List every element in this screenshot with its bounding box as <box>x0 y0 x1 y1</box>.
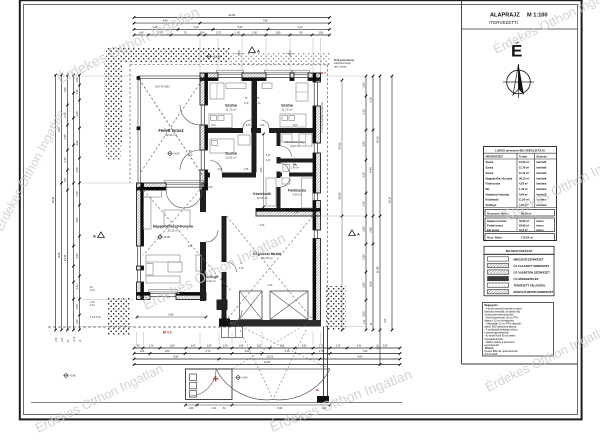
svg-text:1,90: 1,90 <box>63 87 67 93</box>
svg-text:11,40: 11,40 <box>376 266 380 273</box>
svg-text:Bf 0,0: Bf 0,0 <box>163 331 172 335</box>
svg-text:laminált: laminált <box>537 171 547 175</box>
svg-text:12,60: 12,60 <box>228 13 235 17</box>
svg-text:4,64 m²: 4,64 m² <box>290 144 300 148</box>
svg-text:épít. szerint: épít. szerint <box>334 65 347 68</box>
svg-text:9,45: 9,45 <box>57 252 61 258</box>
svg-text:2,10: 2,10 <box>75 191 79 197</box>
svg-text:8,00: 8,00 <box>358 356 363 359</box>
svg-text:+15,68: +15,68 <box>212 55 221 59</box>
svg-text:1,70: 1,70 <box>149 346 154 348</box>
svg-text:3,10: 3,10 <box>298 26 303 29</box>
svg-text:1,05: 1,05 <box>244 169 249 171</box>
svg-text:3,12 m²: 3,12 m² <box>519 228 528 232</box>
svg-text:LAKÁS tervezett HELYISÉGLISTÁJ: LAKÁS tervezett HELYISÉGLISTÁJA <box>495 148 546 153</box>
svg-text:8,50: 8,50 <box>174 356 179 359</box>
svg-text:2,00: 2,00 <box>257 346 262 348</box>
svg-text:4,40: 4,40 <box>268 285 273 287</box>
svg-text:12,52 m²: 12,52 m² <box>519 160 530 164</box>
svg-text:16,45: 16,45 <box>51 196 55 203</box>
svg-text:4,25 m²: 4,25 m² <box>292 193 302 197</box>
svg-text:11,12 m²: 11,12 m² <box>519 171 529 175</box>
svg-text:50/6-4S 0880: 50/6-4S 0880 <box>155 86 170 89</box>
svg-text:-0,02: -0,02 <box>173 152 180 156</box>
svg-text:2,40: 2,40 <box>75 167 79 173</box>
svg-text:5,30: 5,30 <box>238 26 243 29</box>
svg-text:1,00: 1,00 <box>235 31 240 34</box>
svg-text:16,10: 16,10 <box>388 196 392 203</box>
svg-text:1,40: 1,40 <box>208 187 213 189</box>
svg-text:2,80: 2,80 <box>362 226 366 232</box>
svg-text:2,10: 2,10 <box>90 290 95 292</box>
svg-text:Elő terasz: Elő terasz <box>487 228 500 232</box>
svg-text:1,21: 1,21 <box>212 407 217 410</box>
svg-text:2,40: 2,40 <box>75 111 79 117</box>
svg-text:a helyszínen ellenőrizendők.: a helyszínen ellenőrizendők. <box>485 313 515 316</box>
svg-text:(8,50): (8,50) <box>338 192 342 199</box>
svg-text:M 2: M 2 <box>321 71 326 75</box>
svg-text:2,10: 2,10 <box>63 157 67 163</box>
svg-text:8,44: 8,44 <box>369 167 373 173</box>
svg-text:-0,45: -0,45 <box>69 374 76 378</box>
svg-text:(8,50): (8,50) <box>338 142 342 149</box>
svg-text:MEGNEVEZÉS: MEGNEVEZÉS <box>486 156 504 159</box>
svg-text:1,30: 1,30 <box>75 89 79 95</box>
svg-text:- Az épület körül 60 cm széles: - Az épület körül 60 cm széles <box>485 335 517 338</box>
svg-text:kerámia: kerámia <box>537 182 547 186</box>
svg-text:11,79 m²: 11,79 m² <box>226 108 237 112</box>
svg-text:1,40: 1,40 <box>191 346 196 348</box>
svg-text:2,10: 2,10 <box>90 305 95 307</box>
svg-text:2,30: 2,30 <box>362 201 366 207</box>
svg-text:Terület: Terület <box>519 156 527 159</box>
svg-text:Háztartási helyiség: Háztartási helyiség <box>486 192 510 196</box>
svg-text:6,10: 6,10 <box>74 336 76 341</box>
svg-text:2,80: 2,80 <box>362 282 366 288</box>
svg-text:1,90: 1,90 <box>207 346 212 348</box>
svg-text:1,90: 1,90 <box>252 31 257 34</box>
svg-text:1,86: 1,86 <box>188 246 193 248</box>
svg-text:Tervező:: Tervező: <box>485 348 495 350</box>
svg-text:5,10: 5,10 <box>285 350 290 353</box>
svg-text:laminált: laminált <box>537 166 547 170</box>
svg-text:11,79 m²: 11,79 m² <box>519 166 529 170</box>
svg-text:Burkolat: Burkolat <box>537 156 547 159</box>
svg-text:A: A <box>257 49 260 54</box>
svg-text:3,00: 3,00 <box>245 350 250 353</box>
svg-text:1,70: 1,70 <box>336 346 341 348</box>
svg-text:beton: beton <box>537 224 544 228</box>
svg-text:egyeztetendő!: egyeztetendő! <box>485 344 500 347</box>
svg-text:/TERVEZETT/: /TERVEZETT/ <box>489 20 519 25</box>
svg-text:2,26: 2,26 <box>260 225 265 227</box>
svg-text:betonjárda készül.: betonjárda készül. <box>485 338 504 341</box>
svg-text:12,00: 12,00 <box>264 361 271 364</box>
svg-text:3,00: 3,00 <box>362 141 366 147</box>
svg-text:1,87: 1,87 <box>63 177 67 183</box>
svg-text:2,80: 2,80 <box>362 254 366 260</box>
svg-text:1,40: 1,40 <box>266 155 271 157</box>
svg-text:Gépkocsi tároló: Gépkocsi tároló <box>487 219 507 223</box>
svg-text:1,30: 1,30 <box>62 337 64 342</box>
svg-text:- A nyílászárók beépítése előt: - A nyílászárók beépítése előtt a <box>485 329 519 332</box>
svg-text:5,00: 5,00 <box>376 344 380 350</box>
svg-text:2,80: 2,80 <box>369 227 373 233</box>
svg-text:Szoba: Szoba <box>486 160 494 164</box>
svg-text:1,05: 1,05 <box>260 125 265 127</box>
svg-text:3,30: 3,30 <box>362 172 366 178</box>
svg-text:beton: beton <box>537 228 544 232</box>
svg-text:-0,04: -0,04 <box>241 376 248 380</box>
svg-text:A: A <box>93 234 96 239</box>
svg-text:1,61: 1,61 <box>140 350 145 353</box>
svg-text:Szoba: Szoba <box>486 171 494 175</box>
svg-text:2,10: 2,10 <box>188 154 193 156</box>
svg-text:10 cm homlokzati hőszigetelés: 10 cm homlokzati hőszigetelés <box>321 101 324 133</box>
svg-text:1,30: 1,30 <box>56 337 58 342</box>
svg-text:170,04 m²: 170,04 m² <box>521 236 533 240</box>
svg-text:JELMAGYARÁZAT: JELMAGYARÁZAT <box>505 248 532 253</box>
svg-text:Megjegyzés:: Megjegyzés: <box>485 305 499 307</box>
svg-text:3,00: 3,00 <box>362 311 366 317</box>
svg-text:2,10: 2,10 <box>75 284 79 290</box>
svg-text:Fürdőszoba: Fürdőszoba <box>486 182 501 186</box>
svg-text:1,30: 1,30 <box>75 319 79 325</box>
svg-text:3,0 6,0 10: 3,0 6,0 10 <box>90 317 101 319</box>
svg-text:2,40: 2,40 <box>357 346 362 348</box>
svg-text:2,10: 2,10 <box>256 103 261 105</box>
svg-text:7,00: 7,00 <box>363 350 368 353</box>
svg-text:2,50: 2,50 <box>280 346 285 348</box>
svg-text:8: 8 <box>316 389 320 391</box>
svg-text:42,00 m²: 42,00 m² <box>519 219 530 223</box>
svg-text:±0,00: ±0,00 <box>163 235 170 239</box>
svg-text:7,90: 7,90 <box>262 19 268 23</box>
svg-text:1,70: 1,70 <box>319 350 324 353</box>
svg-text:Wc: Wc <box>486 187 490 191</box>
svg-text:méretek egyeztetendők.: méretek egyeztetendők. <box>485 332 510 335</box>
svg-text:Össz. Nettó:: Össz. Nettó: <box>487 236 503 240</box>
svg-text:1,80: 1,80 <box>239 346 244 348</box>
svg-text:2,40: 2,40 <box>63 134 67 140</box>
svg-text:ALAPRAJZ: ALAPRAJZ <box>490 13 520 19</box>
svg-text:36,15 m²: 36,15 m² <box>167 229 178 233</box>
svg-text:3,80: 3,80 <box>276 31 281 34</box>
svg-text:8,44: 8,44 <box>278 407 283 410</box>
svg-text:14,10: 14,10 <box>63 254 67 261</box>
svg-text:falazat + 10 cm hőszigetelés.: falazat + 10 cm hőszigetelés. <box>485 319 515 322</box>
svg-text:1,90: 1,90 <box>318 31 323 34</box>
svg-text:1,70: 1,70 <box>319 346 324 348</box>
svg-text:4,25 m²: 4,25 m² <box>519 182 528 186</box>
svg-text:2,10: 2,10 <box>266 160 271 162</box>
svg-text:22,06 m²: 22,06 m² <box>165 133 176 137</box>
svg-text:Szoba: Szoba <box>486 166 494 170</box>
svg-text:8,50: 8,50 <box>369 281 373 287</box>
svg-text:6,95: 6,95 <box>169 314 174 317</box>
svg-text:1,50: 1,50 <box>385 318 387 323</box>
svg-text:22,06 m²: 22,06 m² <box>519 224 530 228</box>
svg-text:laminált: laminált <box>537 176 547 180</box>
svg-text:lapból, M10 habarcsba falazva.: lapból, M10 habarcsba falazva. <box>485 326 518 329</box>
svg-text:2,90: 2,90 <box>383 346 388 348</box>
svg-text:Kovács Béla okl. építészmérnök: Kovács Béla okl. építészmérnök <box>485 350 519 353</box>
svg-text:36,15 m²: 36,15 m² <box>519 176 530 180</box>
svg-text:11,12 m²: 11,12 m² <box>282 108 293 112</box>
svg-text:1,40 m²: 1,40 m² <box>519 187 528 191</box>
svg-text:3,00: 3,00 <box>200 31 205 34</box>
svg-text:beton: beton <box>537 219 544 223</box>
svg-text:14,10: 14,10 <box>376 136 380 143</box>
svg-text:3,50: 3,50 <box>165 350 170 353</box>
svg-text:1,05: 1,05 <box>246 125 251 127</box>
svg-text:1,00: 1,00 <box>189 407 194 410</box>
svg-text:2,75: 2,75 <box>216 31 221 34</box>
svg-text:2,90: 2,90 <box>211 125 216 127</box>
svg-text:2,10: 2,10 <box>244 103 249 105</box>
svg-text:- A terven szereplő méretek a: - A terven szereplő méretek a vakolt <box>485 307 522 310</box>
svg-text:2,60: 2,60 <box>170 346 175 348</box>
svg-text:10,10: 10,10 <box>267 356 274 359</box>
svg-text:1,40 m²: 1,40 m² <box>291 166 299 169</box>
svg-text:4,70: 4,70 <box>206 350 211 353</box>
svg-text:2,90: 2,90 <box>218 169 223 171</box>
svg-text:- Külső falszerkezet: 30 cm PT: - Külső falszerkezet: 30 cm PTH <box>485 316 519 319</box>
svg-text:2,00: 2,00 <box>362 82 366 88</box>
svg-text:1,30: 1,30 <box>90 302 95 304</box>
svg-text:2,40: 2,40 <box>294 212 299 214</box>
svg-text:falsíkokra értendők, az építés: falsíkokra értendők, az építés előtt <box>485 310 521 313</box>
svg-text:- Minden eltérés a tervezővel: - Minden eltérés a tervezővel <box>485 341 515 344</box>
svg-text:laminált: laminált <box>537 160 547 164</box>
svg-text:3,19: 3,19 <box>362 109 366 115</box>
svg-text:2,90: 2,90 <box>75 140 79 146</box>
svg-text:Fedett terasz: Fedett terasz <box>487 224 504 228</box>
svg-text:12,52 m²: 12,52 m² <box>225 156 236 160</box>
svg-text:A: A <box>357 232 360 237</box>
svg-text:1,00: 1,00 <box>364 319 366 324</box>
svg-text:É/1 01-2345: É/1 01-2345 <box>485 353 498 356</box>
svg-text:2,90: 2,90 <box>293 125 298 127</box>
svg-text:2,90: 2,90 <box>75 217 79 223</box>
svg-text:4,05: 4,05 <box>259 167 263 173</box>
svg-text:3,60: 3,60 <box>75 253 79 259</box>
svg-text:Közlekedő: Közlekedő <box>486 198 499 202</box>
svg-text:Szélfogó: Szélfogó <box>486 203 497 207</box>
svg-text:- Válaszfalak: 10 cm PTH válas: - Válaszfalak: 10 cm PTH válaszfal- <box>485 324 522 326</box>
svg-text:1,30: 1,30 <box>75 304 79 310</box>
svg-text:1,30: 1,30 <box>223 346 228 348</box>
svg-text:5,19: 5,19 <box>369 97 373 103</box>
svg-text:1,80: 1,80 <box>302 346 307 348</box>
svg-text:3,10: 3,10 <box>194 26 199 29</box>
